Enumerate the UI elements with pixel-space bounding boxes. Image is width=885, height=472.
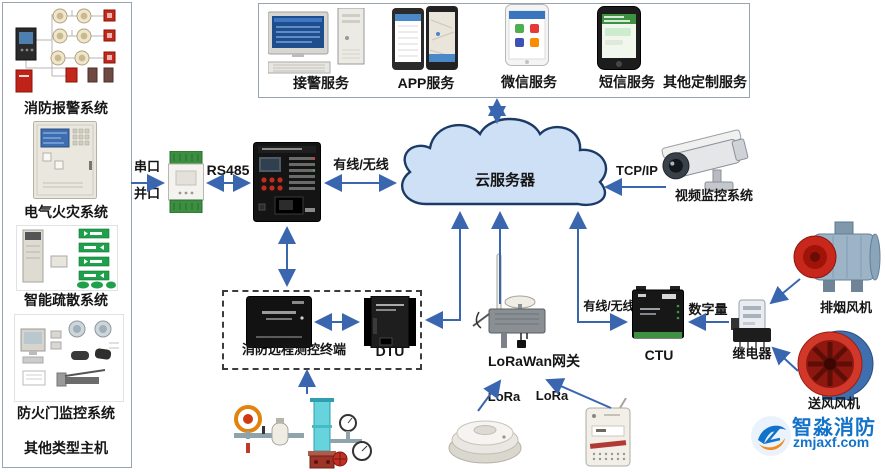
watermark-logo-icon [750,415,792,457]
sms-service-phone-icon [597,6,641,70]
serial-port-label: 串口 [129,160,165,175]
fire-pump-assembly-icon [228,395,380,472]
lora-left-label: LoRa [485,390,523,405]
fire-door-monitoring-image [14,314,124,402]
service-app-label: APP服务 [392,75,460,91]
fire-control-panel-icon [253,142,321,222]
cloud-server-shape [392,112,620,214]
lorawan-gateway-icon [465,252,550,348]
rs485-label: RS485 [204,162,252,178]
sidebar-item-other-hosts-label: 其他类型主机 [2,440,130,456]
arrow-cloud-terminalbox [427,213,460,320]
smoke-exhaust-fan-icon [793,220,883,298]
parallel-port-label: 并口 [129,187,165,202]
ctu-label: CTU [638,347,680,363]
dtu-label: DTU [364,343,416,359]
lorawan-gateway-label: LoRaWan网关 [484,353,584,369]
camera-system-label: 视频监控系统 [662,189,766,204]
electrical-fire-system-image [33,121,97,199]
fire-alarm-system-image [8,4,125,98]
digital-signal-label: 数字量 [684,303,732,318]
lora-wall-device-icon [580,398,636,468]
evacuation-system-image [16,225,118,291]
wechat-service-phone-icon [505,4,549,66]
ctu-device-icon [632,286,684,344]
cloud-server-label: 云服务器 [450,172,560,189]
smoke-fan-label: 排烟风机 [812,301,880,316]
watermark-site-text: zmjaxf.com [793,434,869,450]
service-custom-label: 其他定制服务 [662,74,748,90]
alarm-service-computer-icon [268,8,370,74]
fire-iot-architecture-diagram: 消防报警系统 电气火灾系统 [0,0,885,472]
supply-fan-label: 送风风机 [800,397,868,412]
relay-label: 继电器 [728,347,776,362]
dtu-device-icon [364,296,416,348]
tcpip-label: TCP/IP [608,164,666,179]
service-sms-label: 短信服务 [594,74,660,90]
sidebar-item-fire-alarm-label: 消防报警系统 [2,100,130,116]
lora-smoke-detector-icon [446,404,524,466]
lora-right-label: LoRa [533,389,571,404]
sidebar-item-fire-door-label: 防火门监控系统 [2,405,130,421]
gateway-ctu-link-label: 有线/无线 [578,300,640,314]
panel-cloud-link-label: 有线/无线 [324,158,398,173]
serial-converter-icon [168,151,204,213]
app-service-phones-icon [392,6,460,72]
sidebar-item-electrical-fire-label: 电气火灾系统 [2,204,130,220]
relay-icon [729,298,775,348]
service-alarm-label: 接警服务 [278,75,364,91]
supply-fan-icon [788,328,882,402]
remote-terminal-device-icon [246,296,312,348]
sidebar-item-evacuation-label: 智能疏散系统 [2,292,130,308]
remote-terminal-label: 消防远程测控终端 [226,343,362,358]
service-wechat-label: 微信服务 [496,74,562,90]
